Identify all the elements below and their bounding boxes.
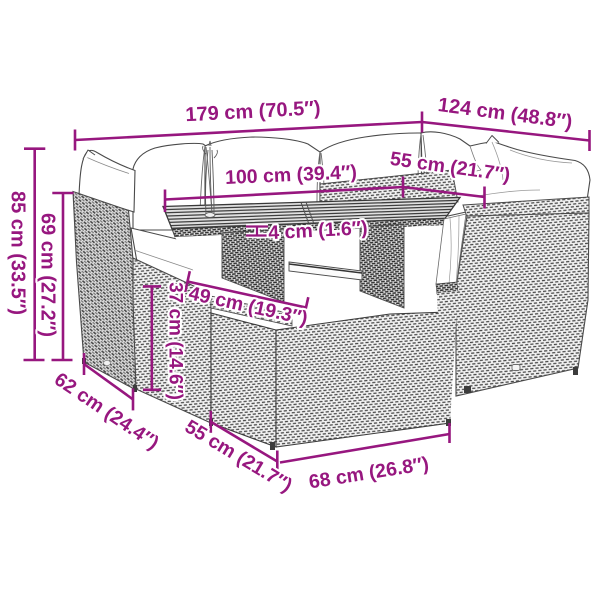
svg-text:85 cm (33.5″): 85 cm (33.5″) <box>7 191 29 315</box>
svg-text:37 cm (14.6″): 37 cm (14.6″) <box>164 282 185 400</box>
svg-text:69 cm (27.2″): 69 cm (27.2″) <box>37 213 59 337</box>
